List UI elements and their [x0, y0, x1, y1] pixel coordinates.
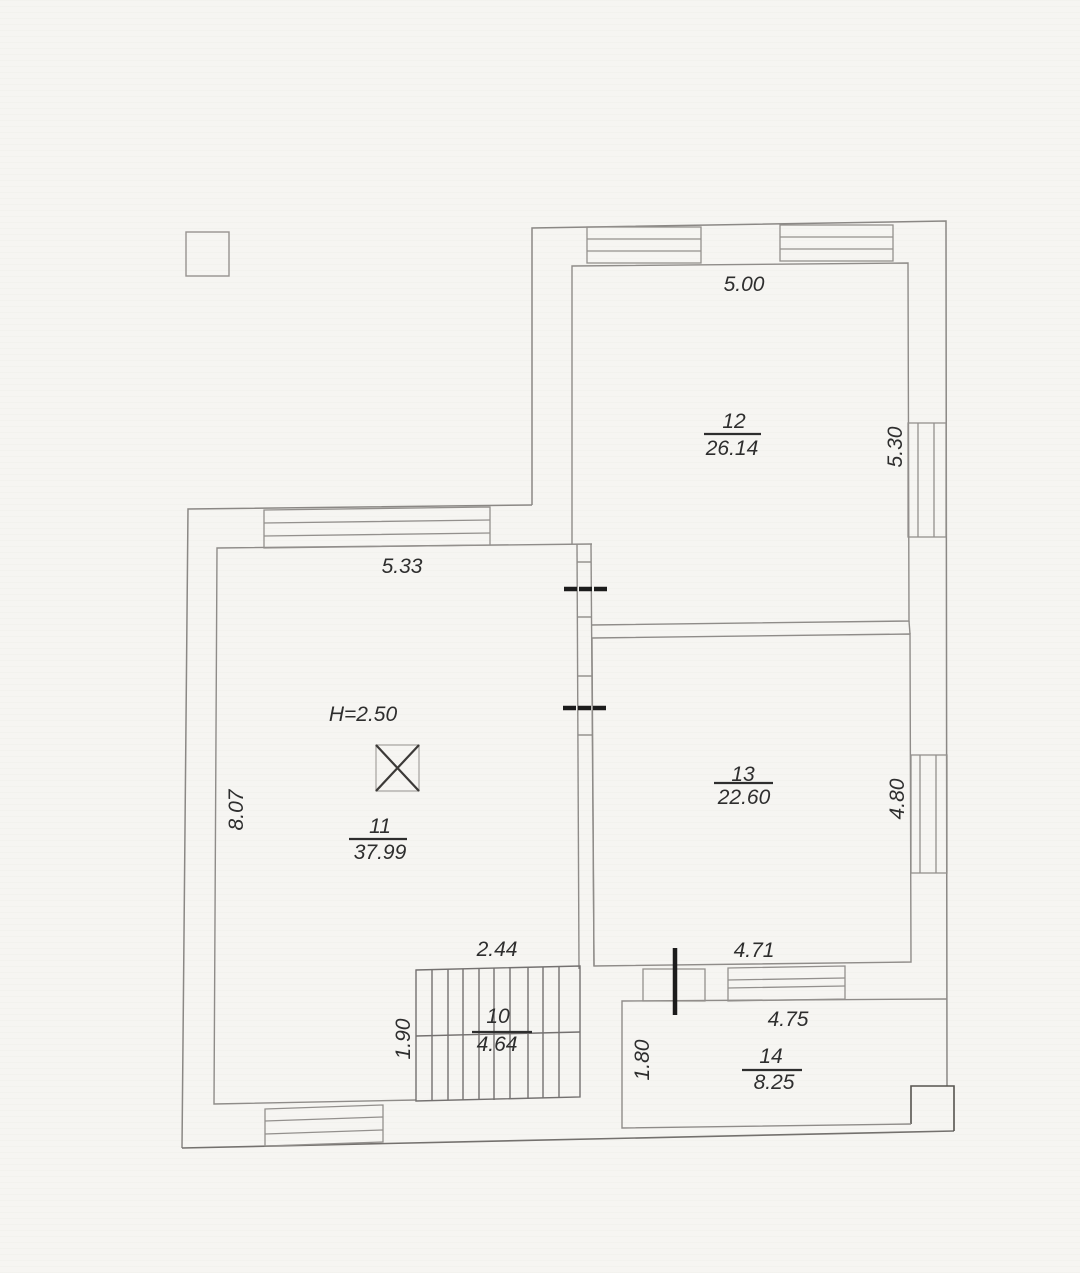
svg-text:4.75: 4.75: [768, 1008, 809, 1031]
svg-text:5.33: 5.33: [382, 555, 423, 578]
svg-text:4.80: 4.80: [886, 778, 909, 819]
svg-text:26.14: 26.14: [705, 437, 759, 460]
svg-text:1.80: 1.80: [631, 1039, 654, 1080]
svg-text:8.07: 8.07: [225, 788, 248, 830]
svg-text:37.99: 37.99: [354, 841, 407, 864]
svg-text:10: 10: [486, 1005, 510, 1028]
svg-text:4.64: 4.64: [477, 1033, 518, 1056]
svg-text:22.60: 22.60: [717, 786, 771, 809]
svg-text:2.44: 2.44: [476, 938, 518, 961]
svg-text:8.25: 8.25: [754, 1071, 795, 1094]
svg-text:5.00: 5.00: [724, 273, 765, 296]
svg-text:12: 12: [722, 410, 746, 433]
svg-text:14: 14: [759, 1045, 782, 1068]
svg-text:1.90: 1.90: [392, 1018, 415, 1059]
svg-text:11: 11: [369, 815, 391, 838]
svg-text:4.71: 4.71: [734, 939, 775, 962]
svg-text:5.30: 5.30: [884, 426, 907, 467]
svg-text:H=2.50: H=2.50: [329, 703, 398, 726]
